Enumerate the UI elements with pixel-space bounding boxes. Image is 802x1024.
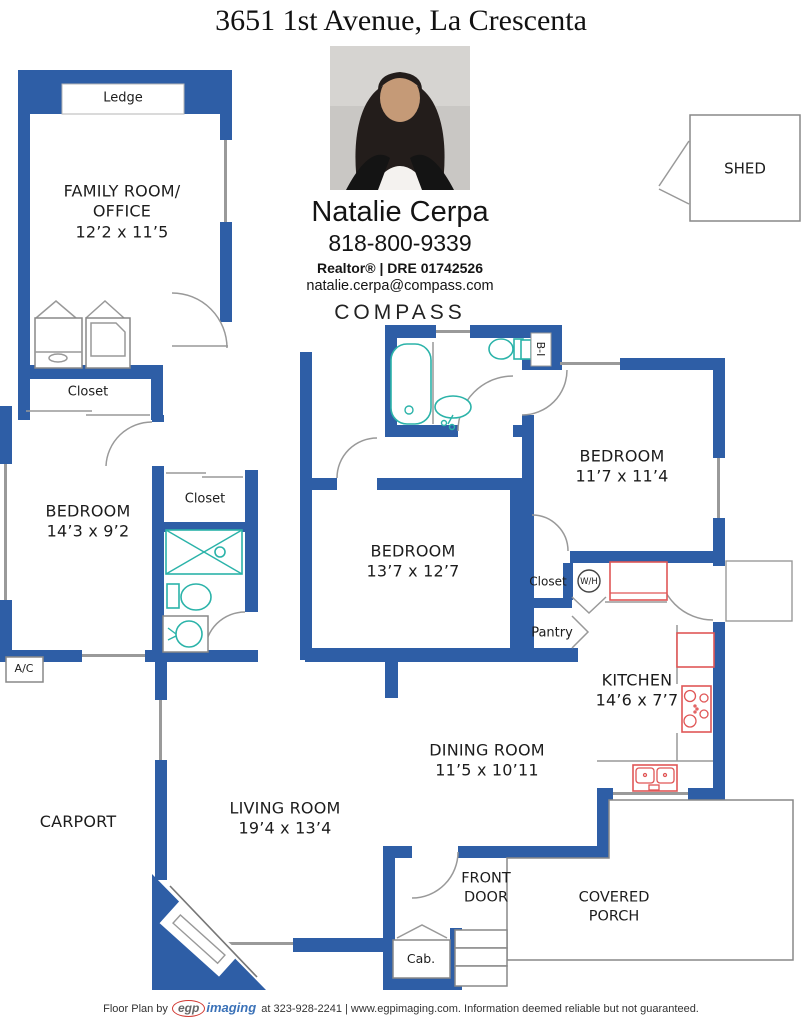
porch-outline xyxy=(507,800,793,960)
pantry-label: Pantry xyxy=(531,626,573,643)
family-bath-fixtures xyxy=(35,318,130,368)
closet-bedroom-label: Closet xyxy=(529,574,566,589)
covered-porch-label: COVERED PORCH xyxy=(567,888,662,925)
family-room-label: FAMILY ROOM/ OFFICE 12’2 x 11’5 xyxy=(47,181,197,242)
water-heater-label: W/H xyxy=(580,577,598,587)
carport-label: CARPORT xyxy=(40,812,117,832)
shed-label: SHED xyxy=(724,159,766,178)
imaging-logo: imaging xyxy=(206,1000,256,1015)
ensuite-bath-fixtures xyxy=(163,530,242,652)
footer-prefix: Floor Plan by xyxy=(103,1003,168,1015)
water-heater: W/H xyxy=(578,570,600,592)
wall-oven xyxy=(677,633,714,667)
ledge-label: Ledge xyxy=(103,91,143,108)
egp-logo: egp xyxy=(172,1000,205,1017)
bedroom-right-label: BEDROOM 11’7 x 11’4 xyxy=(575,447,668,488)
front-door-label: FRONT DOOR xyxy=(451,869,521,906)
footer-text: at 323-928-2241 | www.egpimaging.com. In… xyxy=(261,1003,699,1015)
ac-label: A/C xyxy=(15,662,34,676)
fireplace xyxy=(152,874,266,990)
kitchen-label: KITCHEN 14’6 x 7’7 xyxy=(596,671,679,712)
entry-steps xyxy=(455,930,507,986)
kitchen-sink xyxy=(633,765,677,791)
footer: Floor Plan by egpimaging at 323-928-2241… xyxy=(0,1000,802,1017)
bedroom-left-label: BEDROOM 14’3 x 9’2 xyxy=(46,502,131,543)
sliding-closet-doors xyxy=(26,411,243,477)
closet-family-label: Closet xyxy=(68,385,109,402)
closet-hall-label: Closet xyxy=(185,492,226,509)
floor-plan-page: 3651 1st Avenue, La Crescenta Natalie Ce… xyxy=(0,0,802,1024)
back-landing xyxy=(726,561,792,621)
bedroom-middle-label: BEDROOM 13’7 x 12’7 xyxy=(366,542,459,583)
living-room-label: LIVING ROOM 19’4 x 13’4 xyxy=(229,799,340,840)
cab-label: Cab. xyxy=(407,951,435,967)
dining-room-label: DINING ROOM 11’5 x 10’11 xyxy=(429,741,545,782)
built-in-label: B-I xyxy=(534,342,547,357)
refrigerator xyxy=(610,562,667,600)
